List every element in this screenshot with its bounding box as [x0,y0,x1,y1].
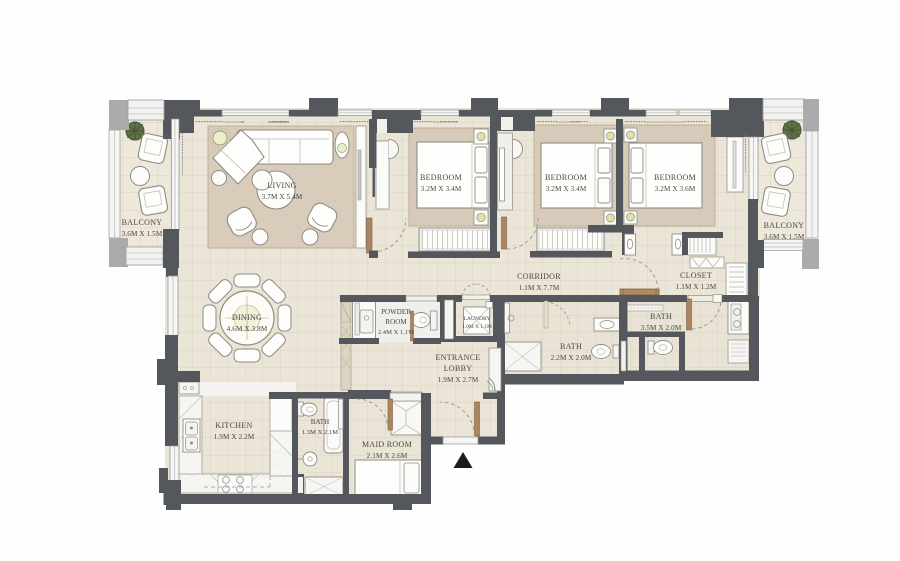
svg-text:3.5M X 2.0M: 3.5M X 2.0M [641,324,682,332]
svg-text:1.9M X 2.7M: 1.9M X 2.7M [438,376,479,384]
svg-text:CORRIDOR: CORRIDOR [517,272,561,281]
svg-text:CLOSET: CLOSET [680,271,712,280]
svg-text:BEDROOM: BEDROOM [420,173,462,182]
svg-text:BEDROOM: BEDROOM [545,173,587,182]
svg-text:POWDER: POWDER [381,308,411,316]
svg-text:BALCONY: BALCONY [764,221,805,230]
svg-text:4.6M X 3.8M: 4.6M X 3.8M [227,325,268,333]
svg-text:BATH: BATH [650,312,672,321]
svg-text:1.1M X 1.2M: 1.1M X 1.2M [676,283,717,291]
svg-text:3.2M X 3.6M: 3.2M X 3.6M [655,185,696,193]
svg-text:3.6M X 1.5M: 3.6M X 1.5M [122,230,163,238]
svg-text:2.4M X 1.1M: 2.4M X 1.1M [378,329,414,336]
svg-text:BALCONY: BALCONY [122,218,163,227]
svg-text:3.2M X 3.4M: 3.2M X 3.4M [546,185,587,193]
svg-text:3.6M X 1.5M: 3.6M X 1.5M [764,233,805,241]
svg-text:1.1M X 7.7M: 1.1M X 7.7M [519,284,560,292]
svg-text:LOBBY: LOBBY [444,364,473,373]
svg-text:ROOM: ROOM [385,318,407,326]
svg-text:MAID ROOM: MAID ROOM [362,440,412,449]
svg-text:BATH: BATH [311,418,329,426]
svg-text:KITCHEN: KITCHEN [215,421,252,430]
svg-text:1.3M X 2.1M: 1.3M X 2.1M [302,429,338,436]
svg-text:2.2M X 2.0M: 2.2M X 2.0M [551,354,592,362]
svg-text:BATH: BATH [560,342,582,351]
svg-text:3.7M X 5.4M: 3.7M X 5.4M [262,193,303,201]
svg-text:BEDROOM: BEDROOM [654,173,696,182]
svg-text:LAUNDRY: LAUNDRY [463,316,490,322]
svg-text:1.9M X 2.2M: 1.9M X 2.2M [214,433,255,441]
svg-text:DINING: DINING [232,313,262,322]
svg-text:LIVING: LIVING [267,181,296,190]
svg-text:3.2M X 3.4M: 3.2M X 3.4M [421,185,462,193]
svg-text:ENTRANCE: ENTRANCE [435,353,480,362]
svg-text:2.1M X 2.6M: 2.1M X 2.6M [367,452,408,460]
svg-text:1.0M X 1.1M: 1.0M X 1.1M [462,324,492,330]
